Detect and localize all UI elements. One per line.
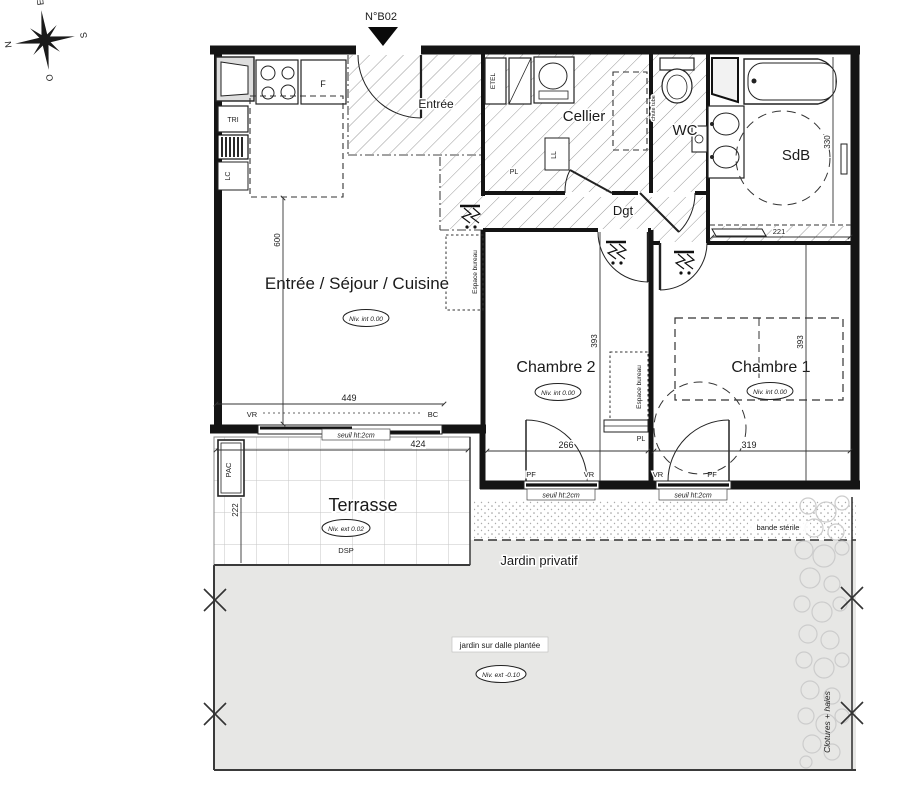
compass-rose-icon: N S E O <box>0 0 94 86</box>
entrance-arrow-icon <box>368 27 398 46</box>
chambre1-label: Chambre 1 <box>731 359 810 376</box>
pac-label: PAC <box>224 462 233 477</box>
washbasin-icon <box>713 146 739 168</box>
chambre1-depth-dim: 393 <box>796 335 805 349</box>
bay-width-dim: 449 <box>341 393 356 403</box>
wc-label: WC <box>673 122 698 139</box>
entree-label: Entrée <box>418 97 454 111</box>
chambre2-depth-dim: 393 <box>590 334 599 348</box>
sdb-depth-dim: 330 <box>823 135 832 149</box>
espace-bureau-sejour-label: Espace bureau <box>472 250 479 294</box>
chambre1-frenchdoor-arc <box>668 420 729 481</box>
espace-bureau-chambre2-label: Espace bureau <box>636 365 643 409</box>
sterile-band-label: bande stérile <box>757 523 800 532</box>
sdb-sliding-door <box>712 229 766 236</box>
toilet-bowl-inner <box>667 75 687 99</box>
terrace-label: Terrasse <box>328 495 397 515</box>
sejour-label: Entrée / Séjour / Cuisine <box>265 274 449 293</box>
chambre2-label: Chambre 2 <box>516 359 595 376</box>
fence-label: Clotures + haies <box>822 690 832 752</box>
chambre2-level: Niv. int 0.00 <box>541 390 575 397</box>
entry-zone-hatch <box>349 55 483 154</box>
chambre1-level: Niv. int 0.00 <box>753 389 787 396</box>
toilet-tank <box>660 58 694 70</box>
sterile-band <box>474 500 856 540</box>
radiator-icon <box>674 252 694 275</box>
garden-level: Niv. ext -0.10 <box>482 672 520 679</box>
compass-o-label: O <box>44 74 55 82</box>
sejour-depth-dim: 600 <box>273 233 282 247</box>
shower-panel <box>712 58 738 102</box>
burner-icon <box>282 67 294 79</box>
chambre1-pf-label: PF <box>707 470 717 479</box>
chambre2-width-dim: 266 <box>558 440 573 450</box>
terrace-depth-dim: 222 <box>231 503 240 517</box>
basin-faucet-icon <box>710 155 714 159</box>
lc-label: LC <box>225 172 232 181</box>
burner-icon <box>262 87 274 99</box>
burner-icon <box>281 85 295 99</box>
garden-note: jardin sur dalle plantée <box>459 641 541 650</box>
chambre1-door-arc <box>660 243 707 290</box>
chambre2-seuil-label: seuil ht:2cm <box>542 493 580 500</box>
fridge-label: F <box>320 79 326 89</box>
cellier-pl-label: PL <box>510 169 519 176</box>
compass-e-label: E <box>35 0 46 6</box>
chambre-pl-label: PL <box>637 436 646 443</box>
counter-dashed-outline <box>250 96 343 197</box>
chambre1-width-dim: 319 <box>741 440 756 450</box>
bay-seuil-label: seuil ht:2cm <box>337 433 375 440</box>
chambre2-vr-label: VR <box>584 470 595 479</box>
washer-panel <box>539 91 568 99</box>
garden-label: Jardin privatif <box>500 553 578 568</box>
burner-icon <box>261 66 275 80</box>
washer-drum-icon <box>539 63 567 89</box>
bathtub-inner <box>748 63 836 100</box>
bay-bc-label: BC <box>428 410 439 419</box>
dgt-label: Dgt <box>613 203 634 218</box>
terrace-dsp-label: DSP <box>338 546 353 555</box>
chambre1-vr-label: VR <box>653 470 664 479</box>
unit-marker: N°B02 <box>365 11 398 46</box>
floor-plan-drawing: bande stérile Jardin privatif jardin sur… <box>0 0 921 800</box>
bay-vr-label: VR <box>247 410 258 419</box>
sink-icon <box>221 62 248 96</box>
garden-left <box>214 565 470 770</box>
bathroom-fixtures <box>708 58 847 205</box>
chute-label: chute tube <box>651 95 657 121</box>
bathtub-faucet-icon <box>752 79 757 84</box>
chambre1-seuil-label: seuil ht:2cm <box>674 493 712 500</box>
compass-s-label: S <box>78 32 89 39</box>
sdb-label: SdB <box>782 147 810 164</box>
kitchen-fixtures: F TRI LC <box>216 57 346 197</box>
sejour-level: Niv. int 0.00 <box>349 316 383 323</box>
unit-number-label: N°B02 <box>365 11 397 23</box>
floor-plan-page: bande stérile Jardin privatif jardin sur… <box>0 0 921 800</box>
terrace-width-dim: 424 <box>410 439 425 449</box>
tri-label: TRI <box>227 117 238 124</box>
compass-n-label: N <box>3 41 14 49</box>
cellier-label: Cellier <box>563 108 606 125</box>
terrace: Terrasse Niv. ext 0.02 DSP PAC 222 424 <box>214 437 470 565</box>
etel-label: ETEL <box>490 72 497 89</box>
terrace-level: Niv. ext 0.02 <box>328 526 364 533</box>
radiator-icon <box>606 242 626 265</box>
ll-label: LL <box>551 151 558 159</box>
chambre2-pf-label: PF <box>526 470 536 479</box>
washbasin-icon <box>713 113 739 135</box>
basin-faucet-icon <box>710 122 714 126</box>
chambre1-turning-circle <box>654 382 746 474</box>
towel-rail <box>841 144 847 174</box>
dressing-width-dim: 221 <box>773 227 786 236</box>
bedroom-items: Espace bureau Espace bureau PL <box>446 235 843 474</box>
lc-cabinet <box>218 162 248 190</box>
